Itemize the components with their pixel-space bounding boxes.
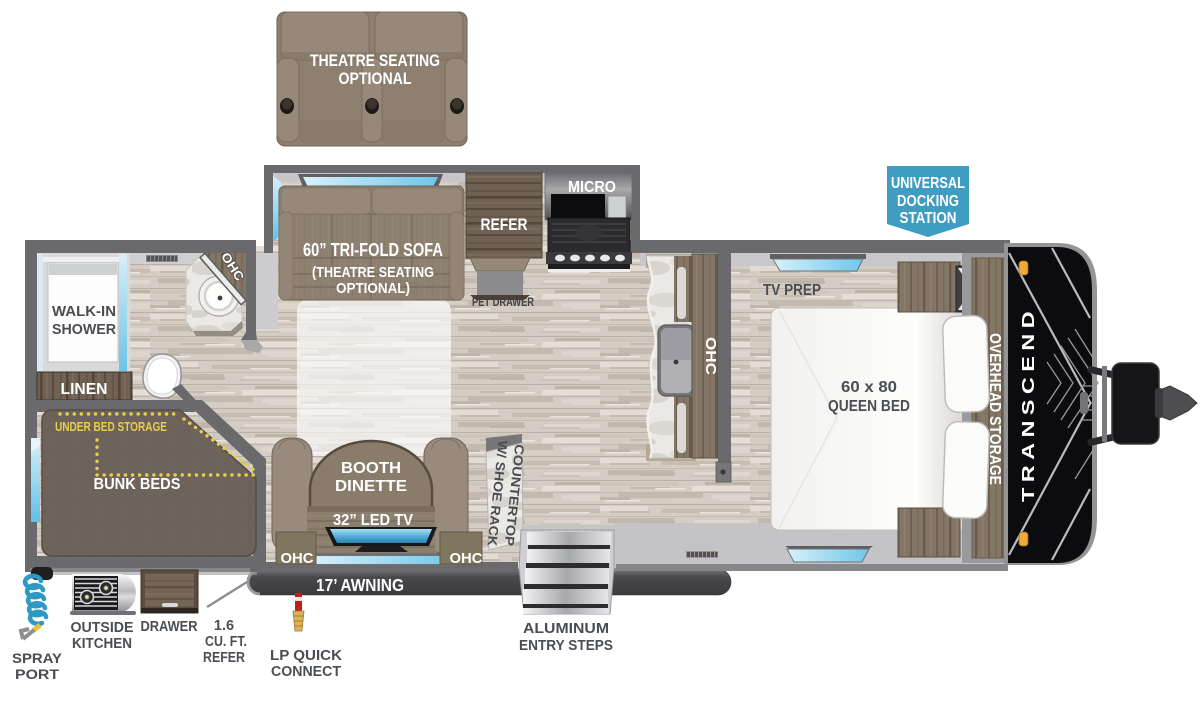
svg-text:1.6: 1.6 xyxy=(214,618,234,634)
svg-text:DINETTE: DINETTE xyxy=(335,478,407,495)
svg-text:OUTSIDE: OUTSIDE xyxy=(71,620,134,636)
svg-text:THEATRE SEATING: THEATRE SEATING xyxy=(310,51,440,70)
svg-text:OHC: OHC xyxy=(281,550,314,567)
svg-text:BUNK BEDS: BUNK BEDS xyxy=(94,476,181,493)
svg-text:PET DRAWER: PET DRAWER xyxy=(472,295,534,309)
svg-text:OVERHEAD STORAGE: OVERHEAD STORAGE xyxy=(986,333,1003,485)
svg-text:PORT: PORT xyxy=(15,666,60,682)
svg-text:WALK-IN: WALK-IN xyxy=(52,303,116,320)
svg-text:ENTRY STEPS: ENTRY STEPS xyxy=(519,637,613,654)
svg-text:DOCKING: DOCKING xyxy=(897,193,959,210)
svg-text:OPTIONAL): OPTIONAL) xyxy=(336,280,410,297)
svg-text:STATION: STATION xyxy=(900,210,957,227)
svg-text:OHC: OHC xyxy=(450,550,483,567)
svg-text:LINEN: LINEN xyxy=(61,381,108,398)
svg-text:BOOTH: BOOTH xyxy=(341,460,401,477)
svg-text:SPRAY: SPRAY xyxy=(12,650,63,666)
svg-text:(THEATRE SEATING: (THEATRE SEATING xyxy=(312,264,434,281)
svg-text:REFER: REFER xyxy=(203,650,245,666)
svg-text:LP QUICK: LP QUICK xyxy=(270,648,343,664)
svg-text:60 x 80: 60 x 80 xyxy=(841,379,897,396)
svg-text:KITCHEN: KITCHEN xyxy=(72,636,132,652)
svg-text:MICRO: MICRO xyxy=(568,179,616,196)
svg-text:TV PREP: TV PREP xyxy=(763,282,821,299)
svg-text:UNDER BED STORAGE: UNDER BED STORAGE xyxy=(55,420,167,434)
svg-text:UNIVERSAL: UNIVERSAL xyxy=(891,175,965,192)
svg-text:17’ AWNING: 17’ AWNING xyxy=(316,575,404,595)
svg-text:REFER: REFER xyxy=(481,216,528,234)
svg-text:OHC: OHC xyxy=(702,337,719,375)
svg-text:SHOWER: SHOWER xyxy=(52,321,116,338)
svg-text:QUEEN BED: QUEEN BED xyxy=(828,398,910,415)
svg-text:CU. FT.: CU. FT. xyxy=(205,634,247,650)
svg-text:CONNECT: CONNECT xyxy=(271,664,341,680)
svg-text:60” TRI-FOLD SOFA: 60” TRI-FOLD SOFA xyxy=(303,240,443,260)
svg-text:ALUMINUM: ALUMINUM xyxy=(523,620,609,637)
svg-text:TRANSCEND: TRANSCEND xyxy=(1018,306,1038,502)
svg-text:OPTIONAL: OPTIONAL xyxy=(339,69,412,88)
svg-text:32” LED TV: 32” LED TV xyxy=(333,512,414,529)
svg-text:DRAWER: DRAWER xyxy=(141,619,198,635)
